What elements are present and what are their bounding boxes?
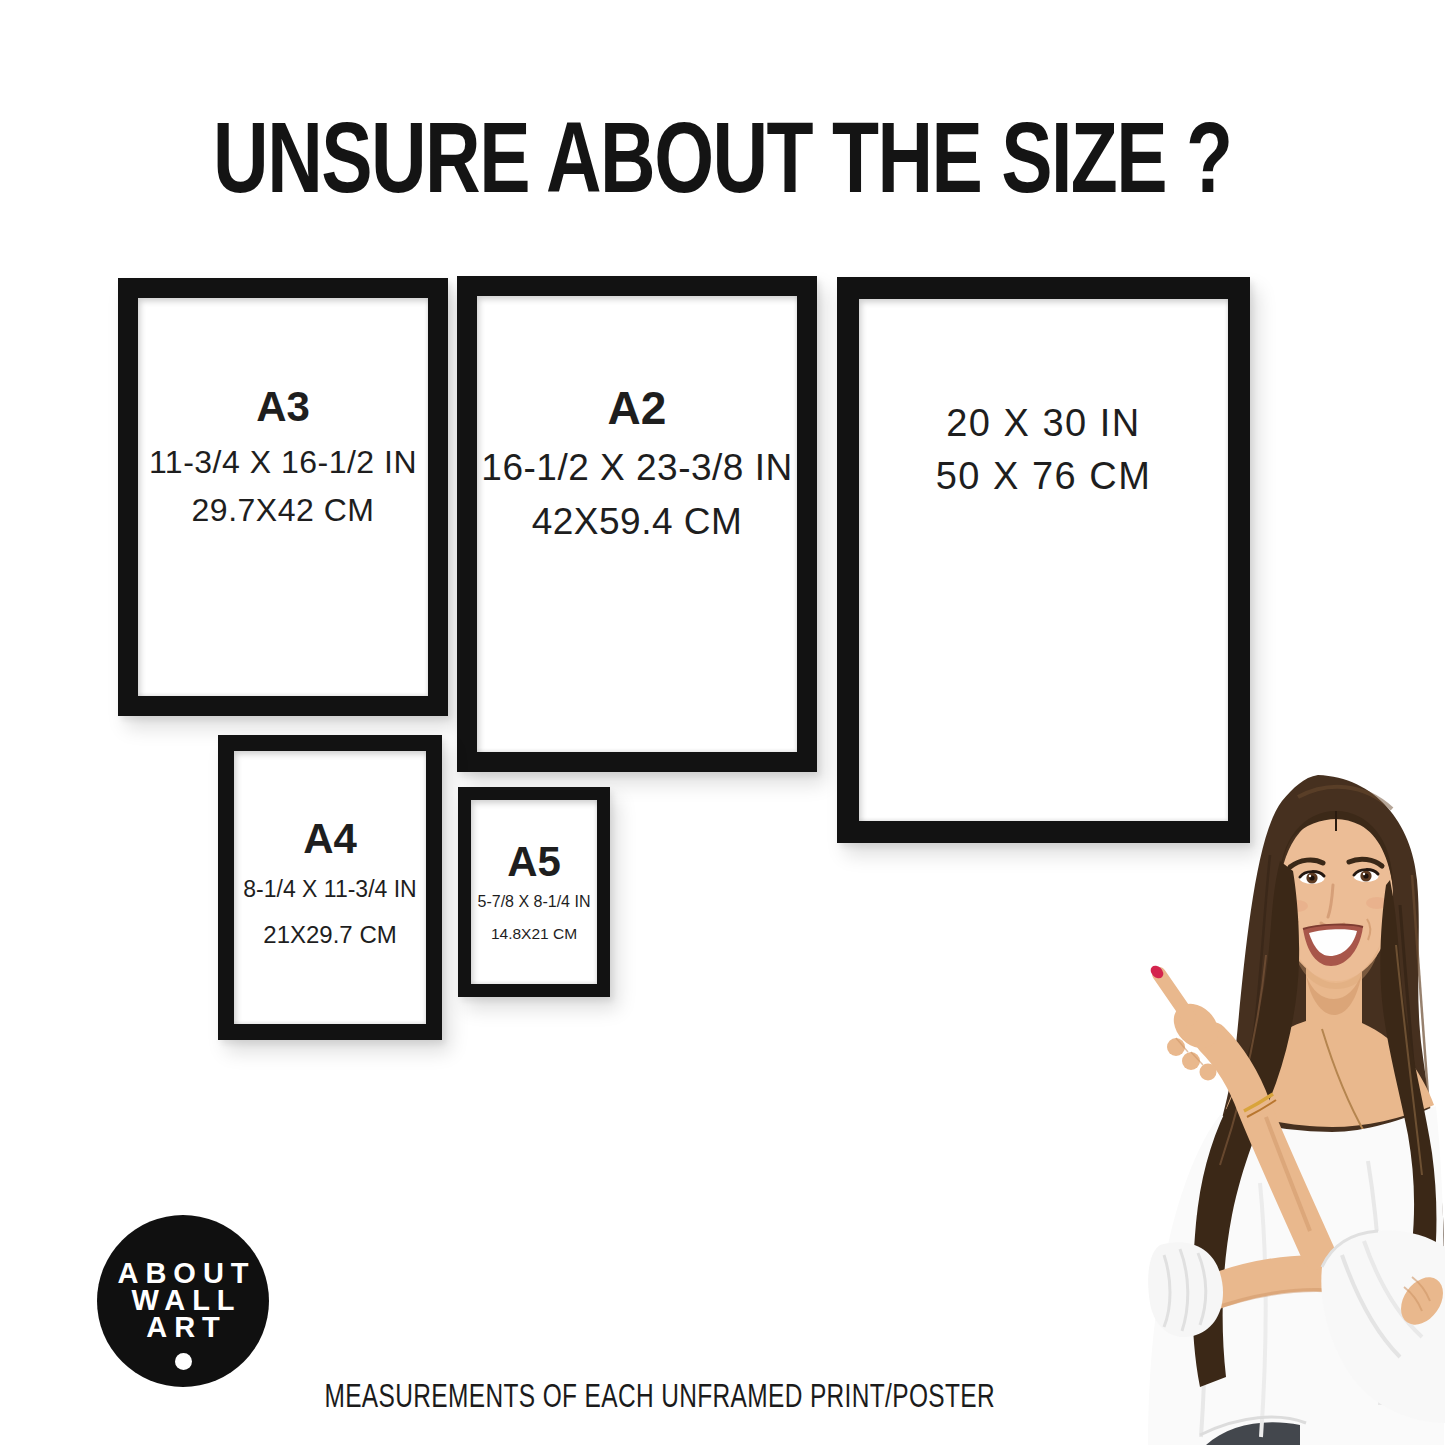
frame-a4-inches: 8-1/4 X 11-3/4 IN — [243, 876, 416, 903]
frame-20x30-cm: 50 X 76 CM — [936, 450, 1152, 503]
frame-a4: A4 8-1/4 X 11-3/4 IN 21X29.7 CM — [218, 735, 442, 1040]
page-title: UNSURE ABOUT THE SIZE ? — [0, 107, 1445, 207]
frame-a3-print: A3 11-3/4 X 16-1/2 IN 29.7X42 CM — [138, 298, 428, 696]
brand-logo: ABOUT WALL ART — [97, 1215, 269, 1387]
frame-a4-cm: 21X29.7 CM — [263, 921, 396, 949]
frame-a2-inches: 16-1/2 X 23-3/8 IN — [481, 441, 792, 495]
brand-logo-line1: ABOUT — [110, 1260, 255, 1287]
frame-a2-label: A2 — [608, 385, 667, 431]
frame-a2-print: A2 16-1/2 X 23-3/8 IN 42X59.4 CM — [477, 296, 797, 752]
brand-logo-line2: WALL — [124, 1287, 241, 1314]
frame-a4-print: A4 8-1/4 X 11-3/4 IN 21X29.7 CM — [234, 751, 426, 1024]
size-guide-poster: UNSURE ABOUT THE SIZE ? A3 11-3/4 X 16-1… — [0, 0, 1445, 1445]
page-title-text: UNSURE ABOUT THE SIZE ? — [213, 107, 1231, 207]
frame-a3-cm: 29.7X42 CM — [192, 486, 375, 534]
frame-a4-label: A4 — [303, 818, 357, 860]
brand-logo-line3: ART — [139, 1314, 227, 1341]
frame-a5-inches: 5-7/8 X 8-1/4 IN — [478, 893, 591, 911]
logo-dot-icon — [175, 1353, 192, 1370]
frame-a2: A2 16-1/2 X 23-3/8 IN 42X59.4 CM — [457, 276, 817, 772]
frame-a5: A5 5-7/8 X 8-1/4 IN 14.8X21 CM — [458, 787, 610, 997]
frame-a5-print: A5 5-7/8 X 8-1/4 IN 14.8X21 CM — [471, 800, 597, 984]
frame-a5-cm: 14.8X21 CM — [491, 925, 577, 943]
footer-caption-text: MEASUREMENTS OF EACH UNFRAMED PRINT/POST… — [325, 1378, 996, 1412]
frame-a3: A3 11-3/4 X 16-1/2 IN 29.7X42 CM — [118, 278, 448, 716]
frame-a2-cm: 42X59.4 CM — [532, 495, 743, 549]
frame-a5-label: A5 — [507, 841, 561, 883]
frame-20x30-print: 20 X 30 IN 50 X 76 CM — [859, 299, 1228, 821]
frame-a3-label: A3 — [256, 386, 310, 428]
frame-20x30: 20 X 30 IN 50 X 76 CM — [837, 277, 1250, 843]
frame-20x30-inches: 20 X 30 IN — [946, 397, 1141, 450]
woman-pointing-illustration — [1060, 775, 1445, 1445]
frame-a3-inches: 11-3/4 X 16-1/2 IN — [149, 438, 417, 486]
